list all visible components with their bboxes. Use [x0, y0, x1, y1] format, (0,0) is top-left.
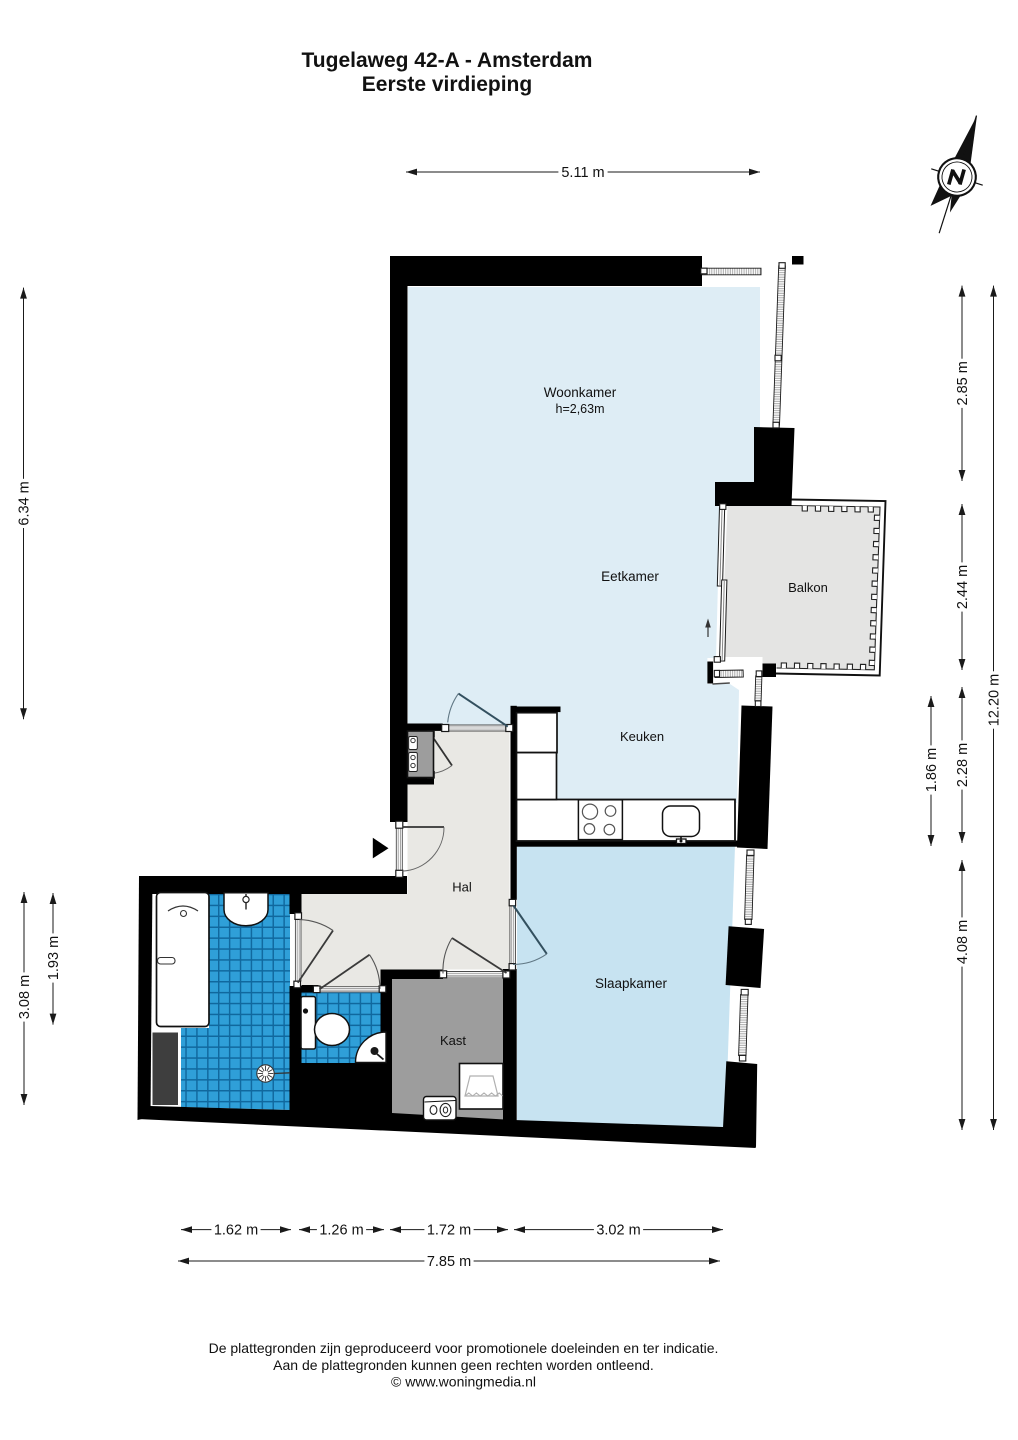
- svg-text:7.85 m: 7.85 m: [427, 1254, 471, 1270]
- svg-text:2.85 m: 2.85 m: [955, 361, 971, 405]
- svg-text:6.34 m: 6.34 m: [17, 481, 33, 525]
- svg-text:Woonkamer: Woonkamer: [544, 385, 617, 400]
- svg-text:Aan de plattegronden kunnen ge: Aan de plattegronden kunnen geen rechten…: [273, 1357, 654, 1373]
- svg-text:3.02 m: 3.02 m: [596, 1223, 640, 1239]
- svg-text:Balkon: Balkon: [788, 580, 828, 595]
- svg-text:Eetkamer: Eetkamer: [601, 569, 659, 584]
- svg-text:1.26 m: 1.26 m: [319, 1223, 363, 1239]
- svg-text:4.08 m: 4.08 m: [955, 920, 971, 964]
- svg-text:2.44 m: 2.44 m: [955, 565, 971, 609]
- svg-text:© www.woningmedia.nl: © www.woningmedia.nl: [391, 1374, 536, 1390]
- svg-text:3.08 m: 3.08 m: [17, 975, 33, 1019]
- svg-text:Eerste virdieping: Eerste virdieping: [362, 73, 532, 96]
- svg-text:1.72 m: 1.72 m: [427, 1223, 471, 1239]
- svg-text:1.93 m: 1.93 m: [46, 936, 62, 980]
- svg-text:Slaapkamer: Slaapkamer: [595, 976, 668, 991]
- svg-text:1.62 m: 1.62 m: [214, 1223, 258, 1239]
- svg-text:Tugelaweg 42-A - Amsterdam: Tugelaweg 42-A - Amsterdam: [302, 49, 593, 72]
- svg-text:Hal: Hal: [452, 880, 472, 895]
- svg-text:De plattegronden zijn geproduc: De plattegronden zijn geproduceerd voor …: [209, 1340, 719, 1356]
- svg-text:Keuken: Keuken: [620, 729, 664, 744]
- svg-text:1.86 m: 1.86 m: [924, 748, 940, 792]
- svg-text:2.28 m: 2.28 m: [955, 743, 971, 787]
- svg-text:h=2,63m: h=2,63m: [556, 402, 605, 416]
- svg-text:12.20 m: 12.20 m: [987, 674, 1003, 726]
- svg-text:5.11 m: 5.11 m: [561, 165, 604, 181]
- svg-text:Kast: Kast: [440, 1033, 466, 1048]
